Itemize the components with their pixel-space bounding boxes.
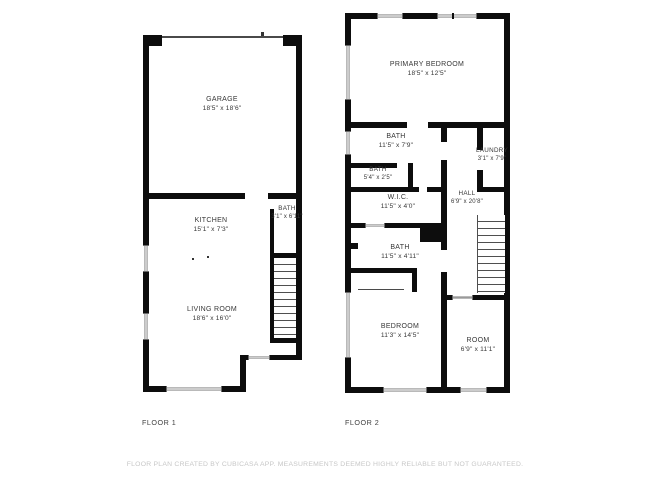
wall	[412, 268, 417, 292]
staircase	[274, 258, 296, 338]
wall	[143, 386, 166, 392]
room-label-bath-upper: BATH 11'5" x 7'9"	[379, 132, 413, 150]
room-name: HALL	[451, 190, 483, 198]
room-dims: 18'5" x 18'6"	[203, 104, 242, 113]
garage-door	[162, 36, 283, 38]
room-label-laundry: LAUNDRY 3'1" x 7'9"	[476, 147, 508, 163]
wall	[143, 35, 162, 46]
room-label-hall: HALL 6'9" x 20'8"	[451, 190, 483, 206]
wall	[222, 386, 246, 392]
wall	[427, 187, 447, 192]
floor-plan-page: GARAGE 18'5" x 18'6" KITCHEN 15'1" x 7'3…	[0, 0, 650, 488]
room-dims: 18'5" x 12'5"	[390, 69, 464, 78]
room-name: BATH	[381, 243, 419, 252]
wall	[477, 122, 483, 150]
fixture-mark	[192, 258, 194, 260]
room-dims: 11'5" x 4'0"	[381, 202, 415, 211]
room-label-primary-bedroom: PRIMARY BEDROOM 18'5" x 12'5"	[390, 60, 464, 78]
door-opening	[452, 295, 473, 300]
room-dims: 15'1" x 7'3"	[194, 225, 229, 234]
window	[437, 13, 477, 19]
window	[166, 386, 222, 392]
wall	[268, 193, 302, 199]
wall	[345, 122, 407, 128]
room-label-garage: GARAGE 18'5" x 18'6"	[203, 95, 242, 113]
room-name: BATH	[379, 132, 413, 141]
wall	[473, 295, 510, 300]
room-dims: 3'1" x 7'9"	[476, 155, 508, 163]
room-dims: 3'1" x 6'11"	[271, 213, 303, 221]
wall	[385, 223, 420, 228]
wall	[441, 230, 447, 250]
window	[345, 292, 351, 358]
wall	[351, 268, 417, 273]
room-dims: 11'5" x 7'9"	[379, 141, 413, 150]
fixture-mark	[207, 256, 209, 258]
wall	[351, 243, 358, 249]
room-name: GARAGE	[203, 95, 242, 104]
room-name: LIVING ROOM	[187, 305, 237, 314]
room-dims: 11'3" x 14'5"	[381, 331, 419, 340]
window	[248, 355, 270, 360]
room-name: W.I.C.	[381, 193, 415, 202]
room-name: LAUNDRY	[476, 147, 508, 155]
window	[460, 387, 487, 393]
room-label-bath-lower: BATH 11'5" x 4'11"	[381, 243, 419, 261]
window	[143, 313, 149, 340]
window	[383, 387, 427, 393]
wall	[345, 387, 383, 393]
wall	[452, 13, 454, 19]
wall	[345, 223, 365, 228]
floor2-caption: FLOOR 2	[345, 418, 379, 427]
wall	[441, 160, 447, 230]
wall	[345, 187, 419, 192]
room-dims: 5'4" x 2'5"	[364, 174, 392, 182]
wall	[441, 272, 447, 393]
room-dims: 18'6" x 16'0"	[187, 314, 237, 323]
window	[345, 45, 351, 100]
wall	[403, 13, 437, 19]
disclaimer-text: FLOOR PLAN CREATED BY CUBICASA APP. MEAS…	[0, 461, 650, 468]
room-dims: 6'9" x 20'8"	[451, 198, 483, 206]
room-name: BATH	[364, 166, 392, 174]
wall	[270, 355, 302, 360]
cased-opening	[365, 223, 385, 228]
window	[143, 245, 149, 272]
staircase	[477, 215, 505, 293]
floor1-caption: FLOOR 1	[142, 418, 176, 427]
room-label-wic: W.I.C. 11'5" x 4'0"	[381, 193, 415, 211]
wall	[441, 122, 447, 142]
room-label-bedroom: BEDROOM 11'3" x 14'5"	[381, 322, 419, 340]
wall	[270, 338, 302, 343]
room-label-bath-f1: BATH 3'1" x 6'11"	[271, 205, 303, 221]
closet-door	[358, 289, 404, 290]
room-label-living-room: LIVING ROOM 18'6" x 16'0"	[187, 305, 237, 323]
room-dims: 6'9" x 11'1"	[461, 345, 495, 354]
room-label-room: ROOM 6'9" x 11'1"	[461, 336, 495, 354]
room-label-kitchen: KITCHEN 15'1" x 7'3"	[194, 216, 229, 234]
wall	[143, 193, 245, 199]
window	[377, 13, 403, 19]
room-label-bath-small: BATH 5'4" x 2'5"	[364, 166, 392, 182]
room-name: BATH	[271, 205, 303, 213]
room-name: PRIMARY BEDROOM	[390, 60, 464, 69]
room-name: ROOM	[461, 336, 495, 345]
wall	[504, 13, 510, 393]
fixture-mark	[261, 32, 264, 36]
room-name: BEDROOM	[381, 322, 419, 331]
wall	[487, 387, 510, 393]
window	[345, 131, 351, 155]
room-dims: 11'5" x 4'11"	[381, 252, 419, 261]
room-name: KITCHEN	[194, 216, 229, 225]
